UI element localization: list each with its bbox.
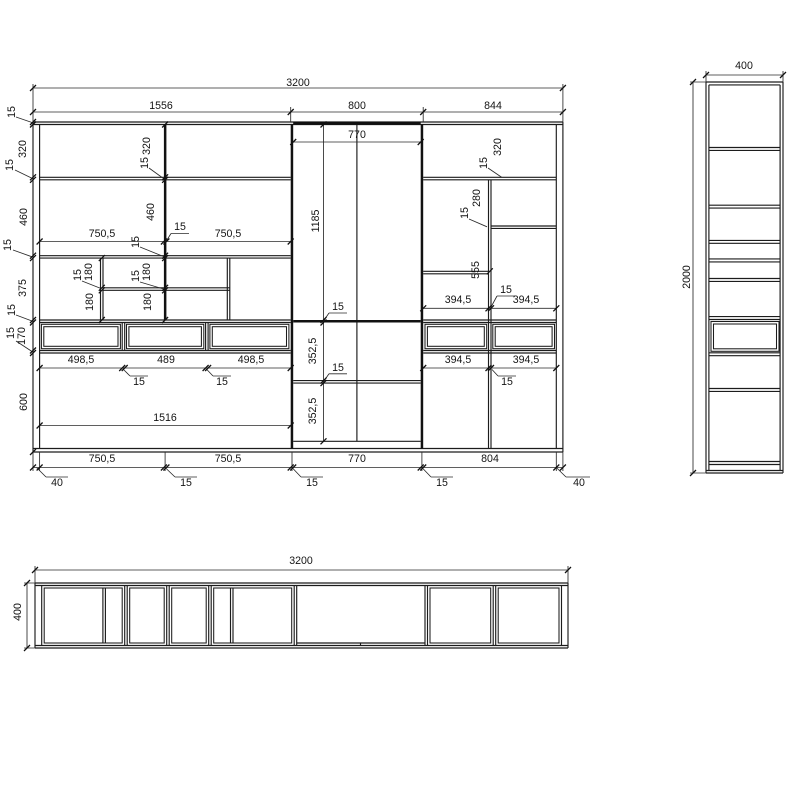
dim-label-front-right: 394,5 (513, 294, 540, 306)
side-drawer-front (711, 322, 779, 352)
dim-label-front-drawers: 498,5 (238, 354, 265, 366)
leader-lines (13, 117, 590, 477)
dim-label-front-bottom-chain: 40 (573, 477, 585, 489)
dim-label-front-row3: 180 (142, 293, 154, 311)
front-frame-lines (33, 122, 563, 452)
dim-label-front-left: 15 (6, 304, 18, 316)
dim-label-front-bottom-chain: 750,5 (89, 453, 116, 465)
dim-label-front-left: 15 (6, 106, 18, 118)
dim-label-front-bottom-chain: 15 (180, 477, 192, 489)
dim-label-front-left: 460 (18, 208, 30, 226)
dim-label-front-middle: 15 (332, 362, 344, 374)
dim-label-front-divider: 460 (145, 203, 157, 221)
dim-label-front-bottom-chain: 15 (306, 477, 318, 489)
dim-label-front-left: 375 (17, 279, 29, 297)
dimension-labels: 3200155680084477015320154601537515151706… (2, 60, 753, 621)
plan-view (35, 583, 568, 648)
dim-label-front-row3: 180 (141, 263, 153, 281)
dim-label-plan: 3200 (289, 555, 313, 567)
dim-label-front-top: 800 (348, 100, 366, 112)
dim-label-front-divider: 15 (139, 157, 151, 169)
dim-label-front-top: 844 (484, 100, 502, 112)
dim-label-front-drawers: 498,5 (68, 354, 95, 366)
front-thick-panels (164, 122, 423, 449)
dim-label-front-bottom-chain: 804 (481, 453, 499, 465)
dim-label-front-left: 320 (17, 140, 29, 158)
dim-label-front-row3: 180 (83, 263, 95, 281)
dim-label-front-divider: 15 (130, 236, 142, 248)
dim-label-front-right: 15 (500, 284, 512, 296)
dim-label-front-row3: 180 (84, 293, 96, 311)
dim-label-front-right: 555 (470, 261, 482, 279)
dim-label-front-row2: 15 (174, 221, 186, 233)
dim-label-plan: 400 (12, 603, 24, 621)
plan-frame-lines (35, 583, 568, 648)
dim-label-front-drawers: 15 (133, 376, 145, 388)
dim-label-front-right: 15 (459, 207, 471, 219)
dim-label-front-bottom-row: 1516 (153, 412, 177, 424)
dim-label-front-top: 1556 (149, 100, 173, 112)
dim-label-front-bottom-chain: 750,5 (215, 453, 242, 465)
dim-label-front-right: 15 (501, 376, 513, 388)
dim-label-front-right: 15 (478, 157, 490, 169)
dim-label-front-divider: 320 (141, 137, 153, 155)
dim-label-front-drawers: 489 (157, 354, 175, 366)
plan-partition-lines (103, 586, 496, 646)
dim-label-front-row2: 750,5 (215, 228, 242, 240)
dim-label-front-left: 15 (2, 239, 14, 251)
dim-label-front-middle: 352,5 (307, 398, 319, 425)
plan-compartment-openings (44, 588, 559, 643)
dim-label-side: 2000 (681, 265, 693, 289)
drawing-canvas: 3200155680084477015320154601537515151706… (0, 0, 800, 800)
side-shelf-lines (709, 148, 780, 392)
dim-label-front-right: 394,5 (445, 294, 472, 306)
dim-label-side: 400 (735, 60, 753, 72)
side-elevation (706, 82, 783, 473)
dimension-lines (13, 71, 786, 651)
front-elevation (33, 122, 563, 452)
dim-label-front-right: 280 (471, 189, 483, 207)
dim-label-front-bottom-chain: 40 (51, 477, 63, 489)
dim-label-front-middle: 352,5 (307, 338, 319, 365)
dim-label-front-left: 15 (4, 159, 16, 171)
side-frame-lines (706, 82, 783, 473)
dim-label-front-left: 600 (18, 393, 30, 411)
front-right-lines (423, 177, 556, 448)
dim-label-front-bottom-chain: 15 (436, 477, 448, 489)
front-middle-lines (293, 125, 421, 442)
dim-label-front-right: 394,5 (513, 354, 540, 366)
extension-lines (24, 71, 783, 648)
dim-label-front-bottom-chain: 770 (348, 453, 366, 465)
dim-label-front-top: 770 (348, 129, 366, 141)
dim-label-front-right: 394,5 (445, 354, 472, 366)
dim-label-front-right: 320 (492, 138, 504, 156)
dim-label-front-row2: 750,5 (89, 228, 116, 240)
dim-label-front-top: 3200 (286, 77, 310, 89)
dim-label-front-drawers: 15 (216, 376, 228, 388)
dim-label-front-middle: 1185 (310, 210, 322, 233)
technical-drawing: 3200155680084477015320154601537515151706… (0, 0, 800, 800)
dim-label-front-left: 170 (16, 327, 28, 345)
dim-label-front-middle: 15 (332, 301, 344, 313)
front-drawer-fronts (41, 324, 554, 348)
